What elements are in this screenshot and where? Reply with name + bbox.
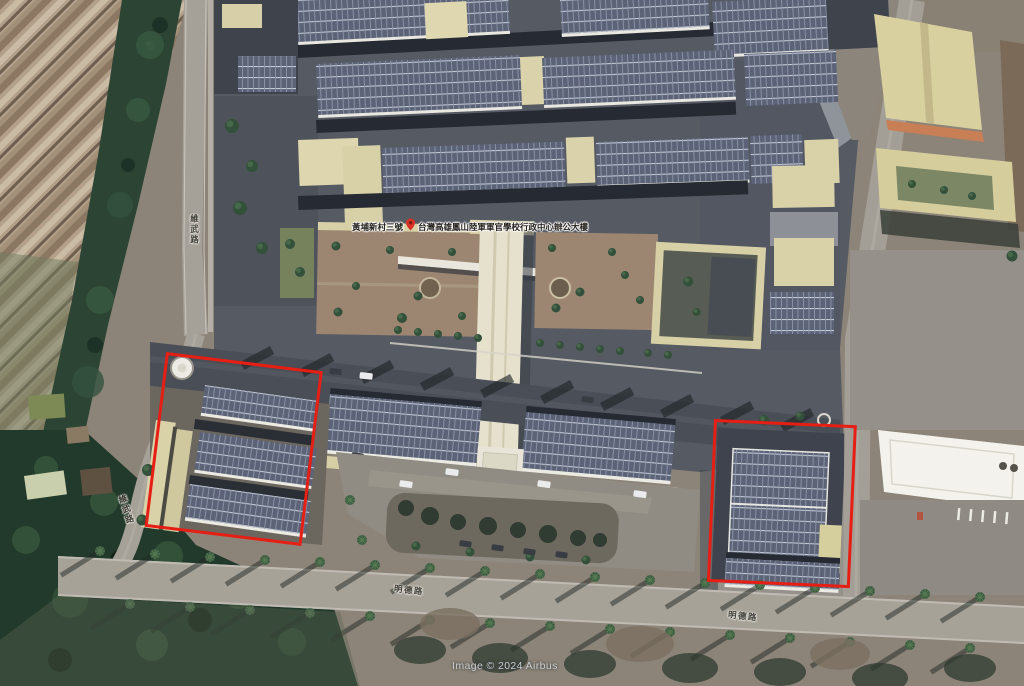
annotation-rect-1 — [145, 352, 323, 546]
map-viewport[interactable]: 黃埔新村三號 台灣高雄鳳山陸軍軍官學校行政中心辦公大樓 Image © 2024… — [0, 0, 1024, 686]
road-label: 明德路 — [394, 584, 425, 596]
map-pin-icon[interactable] — [406, 218, 415, 231]
road-label: 維武路 — [190, 214, 199, 246]
attribution-watermark: Image © 2024 Airbus — [452, 660, 558, 672]
place-label[interactable]: 黃埔新村三號 台灣高雄鳳山陸軍軍官學校行政中心辦公大樓 — [352, 218, 588, 231]
road-label: 維武路 — [117, 493, 135, 526]
place-label-name: 台灣高雄鳳山陸軍軍官學校行政中心辦公大樓 — [418, 223, 588, 232]
map-overlays: 黃埔新村三號 台灣高雄鳳山陸軍軍官學校行政中心辦公大樓 Image © 2024… — [0, 0, 1024, 686]
road-label: 明德路 — [728, 610, 759, 622]
place-label-prefix: 黃埔新村三號 — [352, 223, 403, 232]
annotation-rect-2 — [707, 419, 857, 588]
